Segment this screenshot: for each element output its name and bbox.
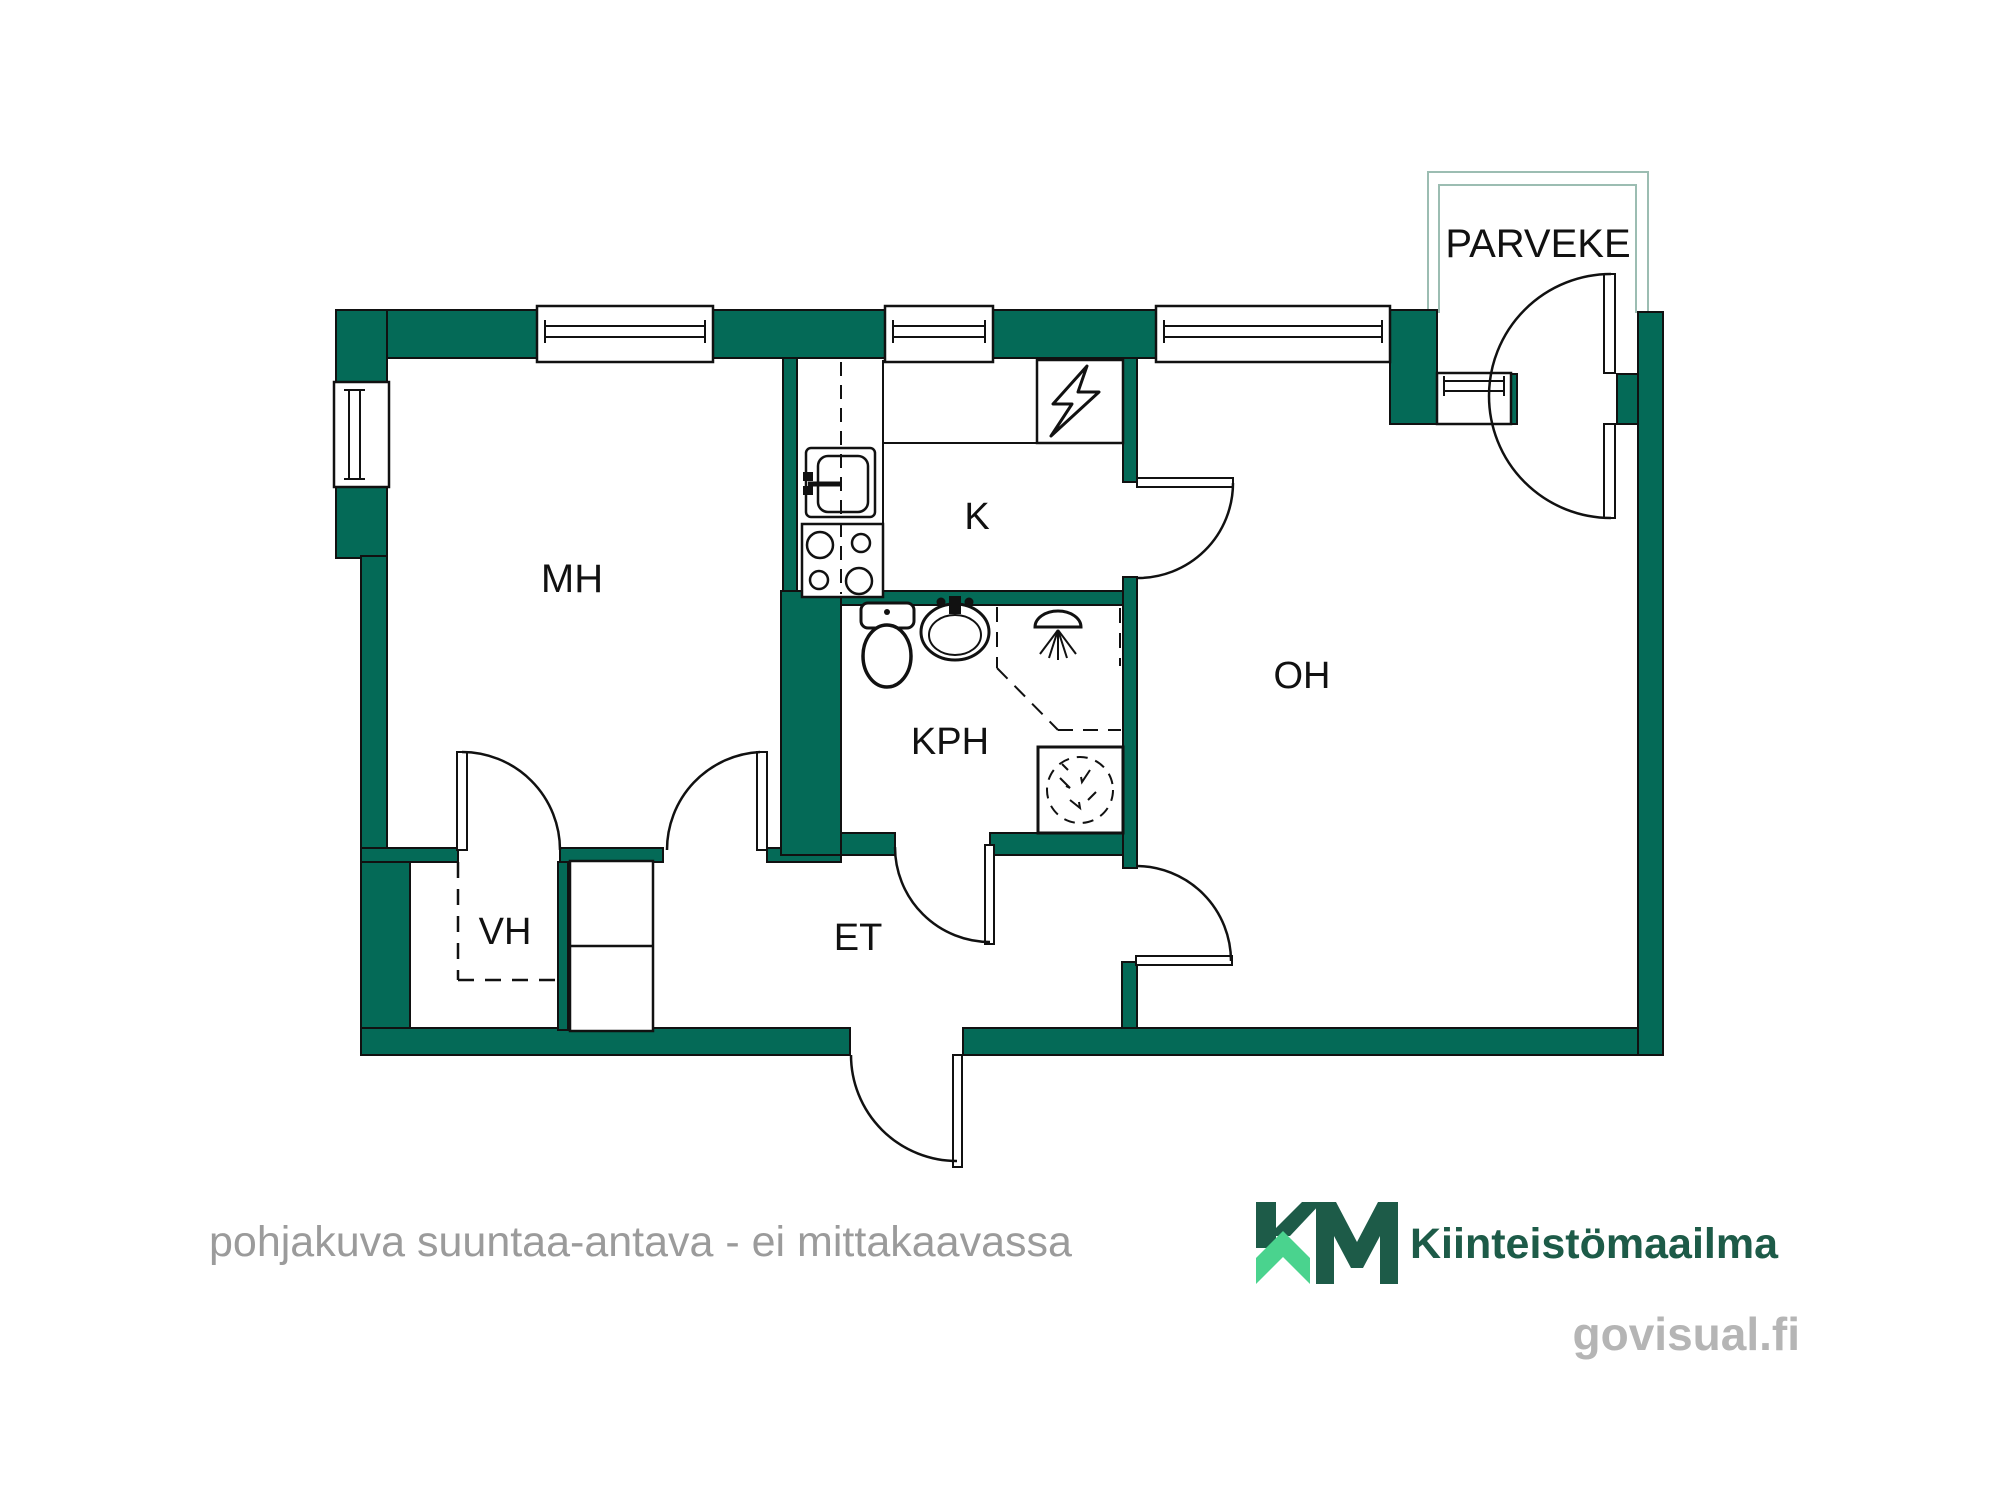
door-entrance <box>851 1055 962 1167</box>
bathroom-fixtures <box>861 596 1123 833</box>
label-kitchen: K <box>964 496 989 538</box>
door-kitchen-living <box>1137 478 1233 578</box>
toilet-icon <box>861 603 914 687</box>
door-closet <box>457 752 560 850</box>
label-bathroom: KPH <box>911 721 989 763</box>
label-living-room: OH <box>1274 655 1331 697</box>
watermark-disclaimer: pohjakuva suuntaa-antava - ei mittakaava… <box>209 1218 1072 1266</box>
floor-plan-page: PARVEKE MH K KPH OH VH ET pohjakuva suun… <box>0 0 2000 1500</box>
washing-machine-icon <box>1038 747 1123 833</box>
window-kitchen <box>885 306 993 362</box>
km-logo-icon <box>1256 1202 1398 1284</box>
site-name: govisual.fi <box>1573 1308 1800 1360</box>
label-closet: VH <box>479 911 532 953</box>
kitchen-fixtures <box>802 360 1123 597</box>
label-bedroom: MH <box>541 557 603 601</box>
stove-icon <box>802 524 883 597</box>
window-living-room <box>1156 306 1390 362</box>
label-hallway: ET <box>834 917 883 959</box>
door-bedroom <box>667 752 767 850</box>
electrical-panel-icon <box>1037 360 1123 443</box>
brand-logo: Kiinteistömaailma govisual.fi <box>1256 1202 1800 1360</box>
window-balcony <box>1437 373 1511 424</box>
door-bathroom <box>895 845 994 944</box>
window-bedroom-top <box>537 306 713 362</box>
wardrobe <box>570 861 653 1031</box>
window-bedroom-left <box>334 382 389 487</box>
label-balcony: PARVEKE <box>1445 222 1630 266</box>
shower-icon <box>1035 611 1081 660</box>
door-hall-living <box>1136 866 1232 965</box>
floor-plan-canvas: PARVEKE MH K KPH OH VH ET pohjakuva suun… <box>0 0 2000 1500</box>
kitchen-sink-icon <box>803 448 875 517</box>
brand-name: Kiinteistömaailma <box>1410 1220 1779 1268</box>
